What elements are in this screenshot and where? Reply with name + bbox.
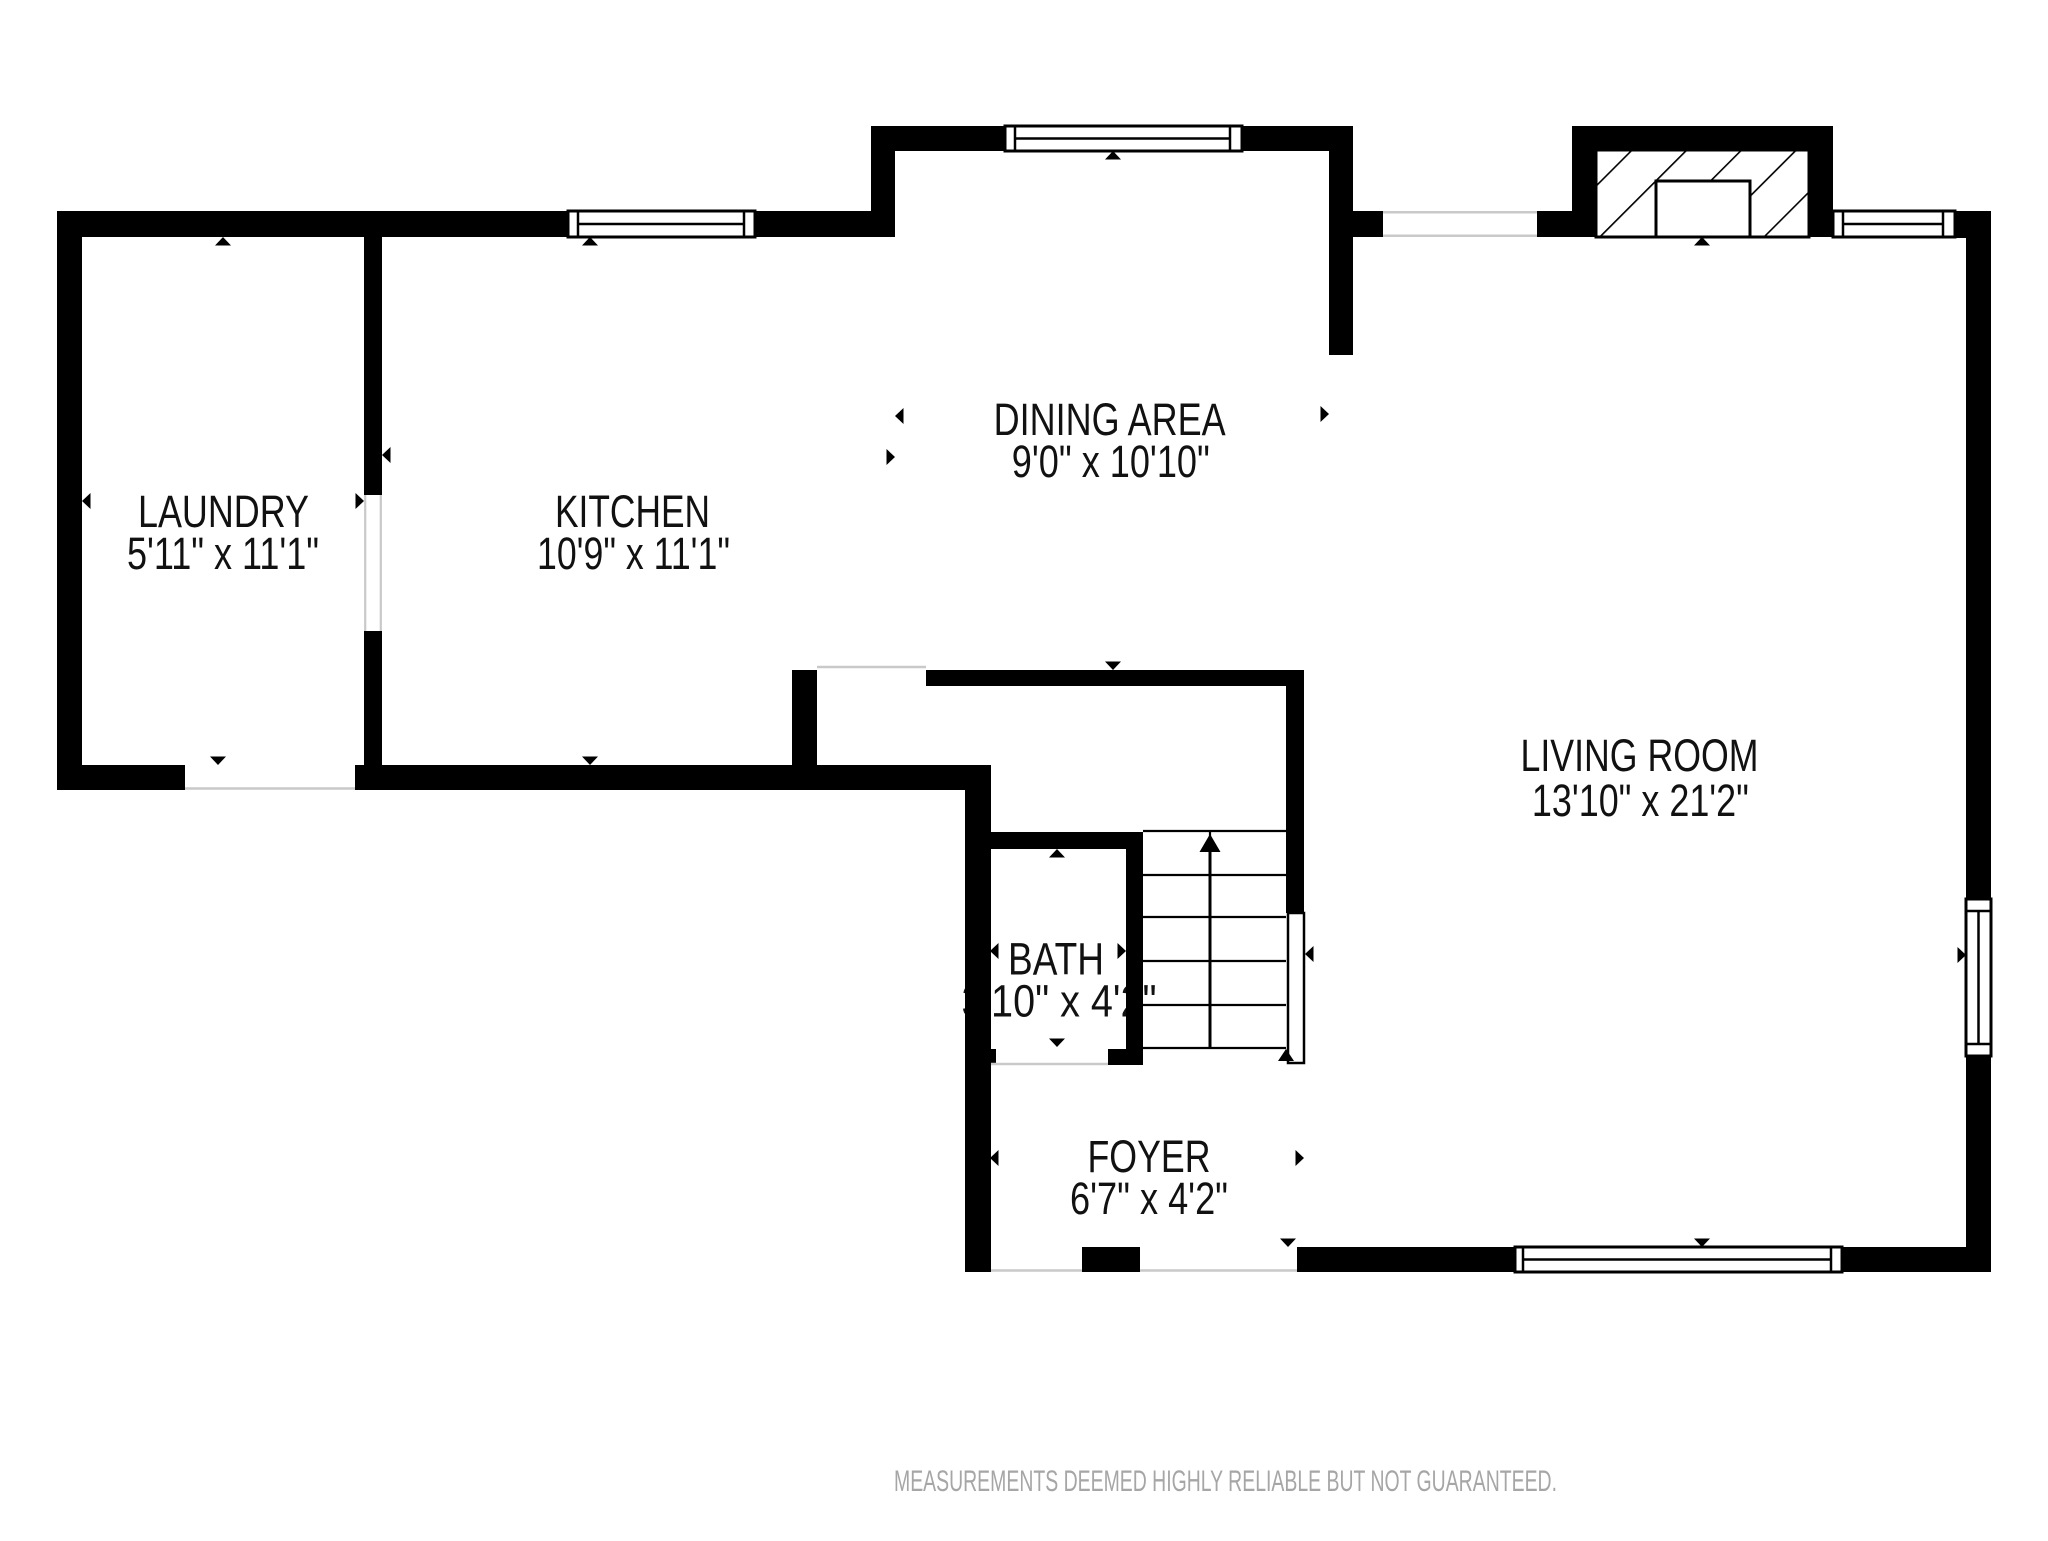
svg-text:6'7" x 4'2": 6'7" x 4'2": [1070, 1173, 1228, 1224]
svg-text:9'0" x 10'10": 9'0" x 10'10": [1012, 436, 1210, 487]
svg-text:13'10" x 21'2": 13'10" x 21'2": [1532, 775, 1749, 826]
svg-text:MEASUREMENTS DEEMED HIGHLY REL: MEASUREMENTS DEEMED HIGHLY RELIABLE BUT …: [894, 1465, 1557, 1498]
svg-text:LIVING ROOM: LIVING ROOM: [1521, 730, 1759, 781]
svg-text:5'11" x 11'1": 5'11" x 11'1": [127, 528, 319, 579]
svg-text:10'9" x 11'1": 10'9" x 11'1": [537, 528, 730, 579]
